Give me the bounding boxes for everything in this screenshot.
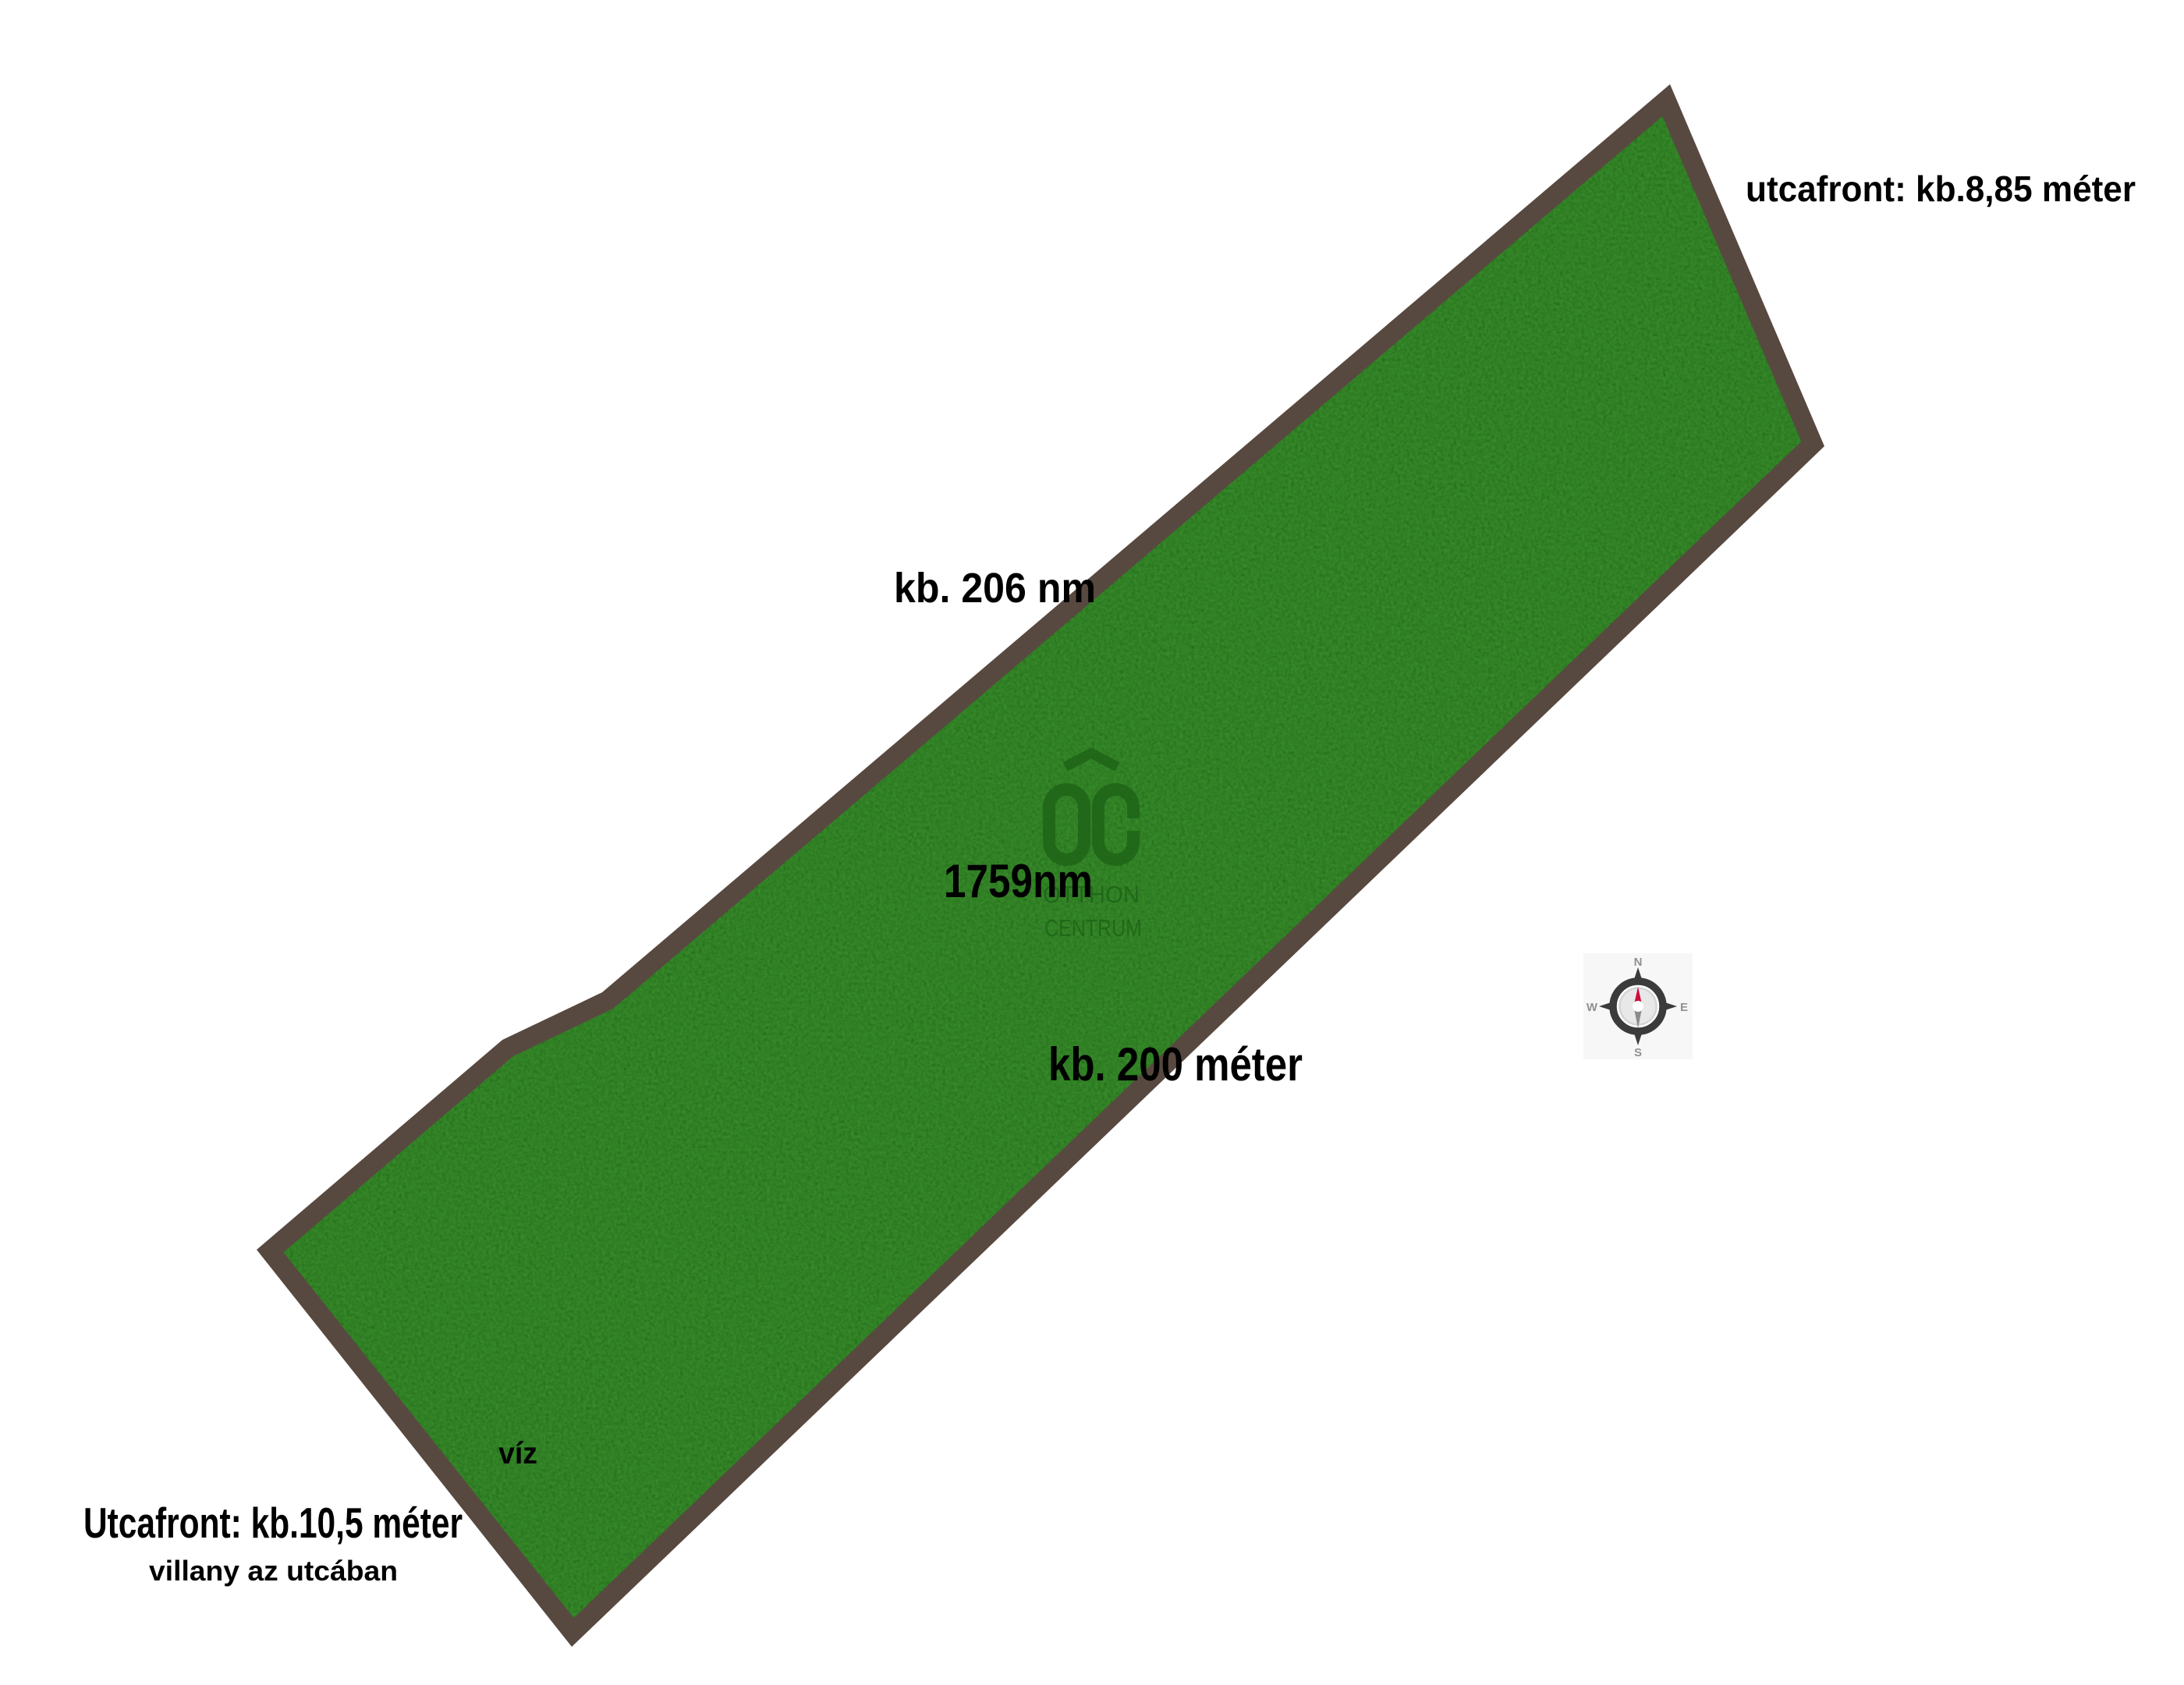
svg-text:E: E (1680, 1001, 1688, 1014)
svg-text:1759nm: 1759nm (944, 855, 1093, 907)
svg-text:víz: víz (498, 1437, 537, 1470)
svg-text:S: S (1634, 1046, 1642, 1059)
svg-text:W: W (1587, 1001, 1598, 1014)
svg-text:N: N (1634, 956, 1643, 969)
svg-text:Utcafront: kb.10,5 méter: Utcafront: kb.10,5 méter (83, 1499, 463, 1547)
svg-text:utcafront: kb.8,85 méter: utcafront: kb.8,85 méter (1746, 168, 2136, 209)
svg-text:kb. 200 méter: kb. 200 méter (1048, 1038, 1303, 1091)
svg-text:villany az utcában: villany az utcában (149, 1555, 398, 1587)
svg-text:kb. 206 nm: kb. 206 nm (894, 565, 1096, 612)
svg-text:CENTRUM: CENTRUM (1044, 914, 1142, 942)
